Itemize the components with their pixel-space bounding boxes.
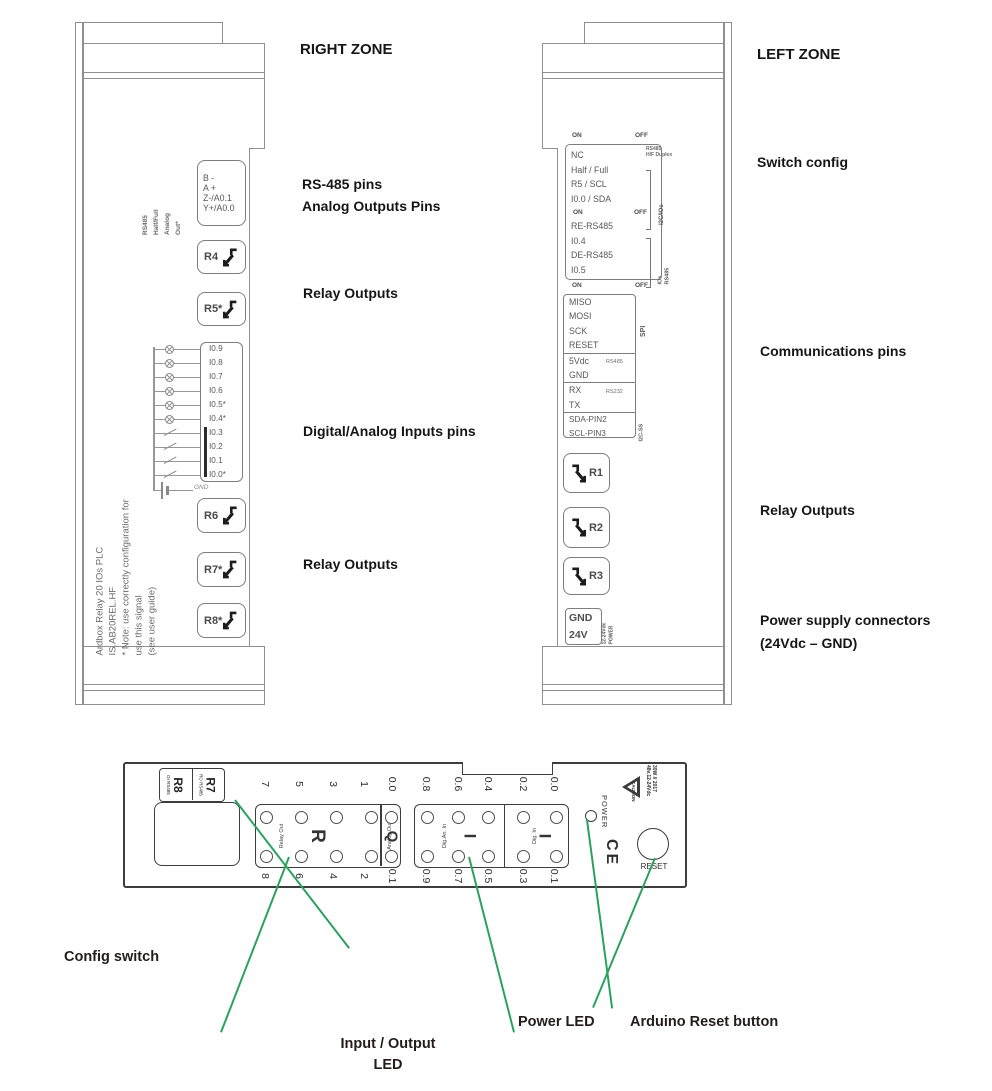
on-label: ON xyxy=(573,206,583,219)
analog-input-icon xyxy=(165,373,174,382)
pin-label: I0.0* xyxy=(201,468,242,482)
digital-group-bar xyxy=(204,427,208,477)
comms-pin: RX xyxy=(564,383,635,397)
config-switch-annotation: Config switch xyxy=(64,949,159,965)
ce-mark: CE xyxy=(602,839,620,873)
pin-label: I0.2 xyxy=(201,440,242,454)
led-circle xyxy=(385,811,398,824)
band-line xyxy=(84,684,264,685)
caption-line: Out* xyxy=(173,165,184,235)
pin-label: I0.9 xyxy=(201,342,242,356)
i2c-ss-tag: I2C-SS xyxy=(639,406,648,442)
pin-number: 8 xyxy=(259,865,271,887)
right-zone-title: RIGHT ZONE xyxy=(300,41,393,58)
top-band xyxy=(83,43,265,88)
tag-small-line: RS485 xyxy=(199,782,204,796)
rs485-pins-label: RS-485 pins xyxy=(302,176,382,192)
relay-label: R3 xyxy=(589,570,603,582)
wire xyxy=(153,419,200,420)
tag-small: RO RS485 xyxy=(199,774,204,796)
left-zone-title: LEFT ZONE xyxy=(757,46,840,63)
tag-line: RS485 xyxy=(664,241,671,285)
pin-number: 0.0 xyxy=(548,773,560,795)
top-tab xyxy=(83,22,223,44)
on-label: ON xyxy=(572,132,582,139)
band-line xyxy=(84,690,264,691)
relay-r5: R5* xyxy=(197,292,246,326)
on-off-header: ON OFF xyxy=(565,132,662,139)
i2c-ios-bracket xyxy=(646,170,651,230)
relay-r4: R4 xyxy=(197,240,246,274)
relay-big-letter: R xyxy=(306,829,328,843)
analog-input-icon xyxy=(165,345,174,354)
tag-small-line: DI xyxy=(167,775,172,780)
led-circle xyxy=(482,811,495,824)
relay-r1: R1 xyxy=(563,453,610,493)
note-line: (see user guide) xyxy=(146,406,159,656)
pin-number: 0.9 xyxy=(420,865,432,887)
pin-label: I0.8 xyxy=(201,356,242,370)
right-zone-device-drawing: RS485 Half/Full Analog Out* B - A + Z-/A… xyxy=(75,22,265,705)
reset-button xyxy=(637,828,669,860)
wire xyxy=(153,391,200,392)
caution-title: CAUTION xyxy=(630,781,636,805)
band-line xyxy=(543,690,723,691)
comms-pin: SCL-PIN3 xyxy=(564,427,635,441)
off-label: OFF xyxy=(635,132,648,139)
on-label: ON xyxy=(572,282,582,289)
pin-label: I0.6 xyxy=(201,384,242,398)
pin-label: I0.1 xyxy=(201,454,242,468)
led-circle xyxy=(330,850,343,863)
relay-outputs-label-bottom: Relay Outputs xyxy=(303,556,398,572)
relay-contact-icon xyxy=(222,559,239,580)
config-switch-tag: R8 DI RS485 R7 RO RS485 xyxy=(159,768,225,802)
on-off-header: ON OFF xyxy=(565,282,662,289)
led-circle xyxy=(260,850,273,863)
pin-number: 2 xyxy=(358,865,370,887)
note-line: use this signal xyxy=(133,406,146,656)
wire xyxy=(153,461,200,462)
relay-contact-icon xyxy=(570,517,587,538)
relay-label: R8* xyxy=(204,615,222,627)
analog-outputs-label: Analog Outputs Pins xyxy=(302,198,440,214)
relay-label: R7* xyxy=(204,564,222,576)
power-led-annotation: Power LED xyxy=(518,1014,595,1030)
led-circle xyxy=(365,850,378,863)
top-band xyxy=(542,43,724,88)
led-row-top xyxy=(260,811,378,824)
top-notch xyxy=(462,762,553,775)
band-line xyxy=(543,78,723,79)
relay-label: R6 xyxy=(204,510,218,522)
pin-number: 0.6 xyxy=(452,773,464,795)
analog-input-icon xyxy=(165,401,174,410)
io-led-annotation-line2: LED xyxy=(320,1057,456,1073)
left-zone-device-drawing: ON OFF NC Half / Full R5 / SCL I0.0 / SD… xyxy=(540,22,732,705)
relay-outputs-label: Relay Outputs xyxy=(760,502,855,518)
led-circle xyxy=(295,811,308,824)
din-rail-strip xyxy=(75,22,83,705)
config-switch-body xyxy=(154,802,240,866)
comms-connector: MISO MOSI SCK RESET 5Vdc GND RX TX SDA-P… xyxy=(563,294,636,438)
relay-out-label: Relay Out xyxy=(279,824,285,848)
relay-label: R1 xyxy=(589,467,603,479)
led-circle xyxy=(550,811,563,824)
pin-label: Z-/A0.1 xyxy=(198,193,245,203)
analog-input-icon xyxy=(165,415,174,424)
io-led-annotation-line1: Input / Output xyxy=(320,1036,456,1052)
pin-number: 0.8 xyxy=(420,773,432,795)
communications-pins-label: Communications pins xyxy=(760,343,906,359)
led-row-bottom xyxy=(517,850,563,863)
led-circle xyxy=(421,850,434,863)
pin-number: 1 xyxy=(358,773,370,795)
reset-button-annotation: Arduino Reset button xyxy=(630,1014,778,1030)
led-row-top xyxy=(421,811,495,824)
power-rotated-tag: 12-24Vdc POWER xyxy=(602,605,615,645)
i2c-ios-tag: I2C/IOs xyxy=(659,175,669,225)
analog-divider xyxy=(380,805,382,866)
relay-contact-icon xyxy=(222,299,239,320)
tag-big: R8 xyxy=(172,777,186,792)
rs485-ios-tag: IOs RS485 xyxy=(658,241,671,285)
analog-big-letter: Q xyxy=(383,831,400,843)
led-row-bottom xyxy=(421,850,495,863)
rs485-analog-connector: B - A + Z-/A0.1 Y+/A0.0 xyxy=(197,160,246,226)
wire xyxy=(153,349,200,350)
switch-config-label: Switch config xyxy=(757,154,848,170)
power-supply-label-line1: Power supply connectors xyxy=(760,612,930,628)
tag-cell-r8: R8 DI RS485 xyxy=(160,769,193,800)
bottom-band xyxy=(542,646,724,705)
dig-big-letter: I xyxy=(534,834,554,839)
pin-label: B - xyxy=(198,173,245,183)
tag-small: DI RS485 xyxy=(167,775,172,795)
tag-small-line: RO xyxy=(199,774,204,781)
pin-number: 0.0 xyxy=(386,773,398,795)
reset-button-label: RESET xyxy=(630,862,678,871)
wire xyxy=(169,490,193,491)
pin-label: I0.7 xyxy=(201,370,242,384)
dig-led-block: Dig. In I xyxy=(504,804,569,868)
comms-pin: 5Vdc xyxy=(564,354,635,368)
relay-r7: R7* xyxy=(197,552,246,587)
digan-led-block: Dig.An. In I xyxy=(414,804,504,868)
inputs-pins-label: Digital/Analog Inputs pins xyxy=(303,423,476,439)
digan-in-label: Dig.An. In xyxy=(442,824,448,848)
led-circle xyxy=(260,811,273,824)
power-supply-connector: GND 24V xyxy=(565,608,602,645)
supply-pin: GND xyxy=(566,610,601,627)
wire xyxy=(153,405,200,406)
digan-big-letter: I xyxy=(459,834,479,839)
body-step xyxy=(249,87,265,149)
led-circle xyxy=(452,811,465,824)
led-circle xyxy=(295,850,308,863)
page: { "right_zone": { "title": "RIGHT ZONE",… xyxy=(0,0,992,1091)
band-line xyxy=(543,72,723,73)
comms-pin: SDA-PIN2 xyxy=(564,413,635,427)
rs485-ios-bracket xyxy=(646,238,651,288)
power-pins-section: 5Vdc GND xyxy=(564,353,635,383)
wire xyxy=(153,475,200,476)
relay-label: R4 xyxy=(204,251,218,263)
led-circle xyxy=(452,850,465,863)
led-circle xyxy=(482,850,495,863)
relay-contact-icon xyxy=(222,610,239,631)
comms-pin: MISO xyxy=(564,295,635,309)
led-circle xyxy=(421,811,434,824)
comms-pin: MOSI xyxy=(564,309,635,323)
led-circle xyxy=(330,811,343,824)
note-line: * Note: use correctly configuration for xyxy=(120,406,133,656)
pin-label: Y+/A0.0 xyxy=(198,203,245,213)
tag-line: H/F Duplex xyxy=(646,152,672,158)
din-rail-strip xyxy=(724,22,732,705)
tag-small-line: RS485 xyxy=(167,781,172,795)
caution-line: 48v.12-24Vdc xyxy=(645,765,651,807)
led-circle xyxy=(517,850,530,863)
tag-line: POWER xyxy=(608,605,615,645)
rs485-analog-caption: RS485 Half/Full Analog Out* xyxy=(140,165,186,235)
pin-number: 3 xyxy=(327,773,339,795)
i2c-section: SDA-PIN2 SCL-PIN3 xyxy=(564,412,635,441)
caption-line: Analog xyxy=(162,165,173,235)
relay-r3: R3 xyxy=(563,557,610,595)
spi-tag: SPI xyxy=(640,307,650,337)
pin-label: I0.3 xyxy=(201,426,242,440)
rs485-hf-tag: RS485 H/F Duplex xyxy=(646,146,672,158)
band-line xyxy=(84,78,264,79)
wire xyxy=(153,433,200,434)
pin-number: 0.5 xyxy=(482,865,494,887)
caution-line: 30W // 2017 xyxy=(651,765,657,807)
note-line: IS.AB20REL.HF xyxy=(107,406,120,656)
spi-section: MISO MOSI SCK RESET xyxy=(564,295,635,353)
tag-big: R7 xyxy=(204,777,218,792)
relay-outputs-label-top: Relay Outputs xyxy=(303,285,398,301)
relay-label: R5* xyxy=(204,303,222,315)
led-circle xyxy=(365,811,378,824)
pin-number: 0.3 xyxy=(517,865,529,887)
tag-cell-content: R8 DI RS485 xyxy=(162,770,190,800)
comms-pin: RESET xyxy=(564,338,635,352)
led-row-top xyxy=(517,811,563,824)
pin-number: 7 xyxy=(259,773,271,795)
product-note: Ardbox Relay 20 IOs PLC IS.AB20REL.HF * … xyxy=(94,406,159,656)
band-line xyxy=(84,72,264,73)
pin-number: 0.7 xyxy=(452,865,464,887)
power-supply-label-line2: (24Vdc – GND) xyxy=(760,635,857,651)
pin-number: 0.1 xyxy=(548,865,560,887)
led-circle xyxy=(385,850,398,863)
pin-label: A + xyxy=(198,183,245,193)
relay-contact-icon xyxy=(570,463,587,484)
pin-label: I0.5* xyxy=(201,398,242,412)
note-line: Ardbox Relay 20 IOs PLC xyxy=(94,406,107,656)
battery-bar-long xyxy=(161,482,163,499)
comms-pin: SCK xyxy=(564,324,635,338)
led-circle xyxy=(517,811,530,824)
band-line xyxy=(543,684,723,685)
pin-number: 0.2 xyxy=(517,773,529,795)
relay-led-block: Relay Out R Analog Out Q xyxy=(255,804,401,868)
wire xyxy=(153,363,200,364)
rs232-tag: RS232 xyxy=(606,389,623,395)
relay-r2: R2 xyxy=(563,507,610,548)
tag-cell-r7: R7 RO RS485 xyxy=(192,769,223,800)
tag-cell-content: R7 RO RS485 xyxy=(195,771,223,800)
caption-line: Half/Full xyxy=(151,165,162,235)
comms-pin: TX xyxy=(564,398,635,412)
led-circle xyxy=(550,850,563,863)
relay-contact-icon xyxy=(222,247,239,268)
body-step xyxy=(542,87,558,149)
relay-r6: R6 xyxy=(197,498,246,533)
serial-section: RX TX xyxy=(564,382,635,412)
input-pin-connector: I0.9 I0.8 I0.7 I0.6 I0.5* I0.4* I0.3 I0.… xyxy=(200,342,243,482)
wire xyxy=(153,377,200,378)
relay-r8: R8* xyxy=(197,603,246,638)
pin-label: I0.4* xyxy=(201,412,242,426)
wire xyxy=(153,447,200,448)
caption-line: RS485 xyxy=(140,165,151,235)
relay-contact-icon xyxy=(570,566,587,587)
supply-pin: 24V xyxy=(566,627,601,644)
bottom-view-drawing: R8 DI RS485 R7 RO RS485 Relay Out R Anal… xyxy=(123,762,687,888)
rs485-tag: RS485 xyxy=(606,359,623,365)
pin-number: 4 xyxy=(327,865,339,887)
top-tab xyxy=(584,22,724,44)
comms-pin: GND xyxy=(564,368,635,382)
pin-number: 0.1 xyxy=(386,865,398,887)
pin-number: 0.4 xyxy=(482,773,494,795)
relay-label: R2 xyxy=(589,522,603,534)
pin-number: 5 xyxy=(293,773,305,795)
analog-input-icon xyxy=(165,387,174,396)
gnd-label: GND xyxy=(194,484,208,491)
caution-text: 30W // 2017 48v.12-24Vdc xyxy=(645,765,657,807)
relay-contact-icon xyxy=(222,505,239,526)
off-label: OFF xyxy=(635,282,648,289)
analog-input-icon xyxy=(165,359,174,368)
